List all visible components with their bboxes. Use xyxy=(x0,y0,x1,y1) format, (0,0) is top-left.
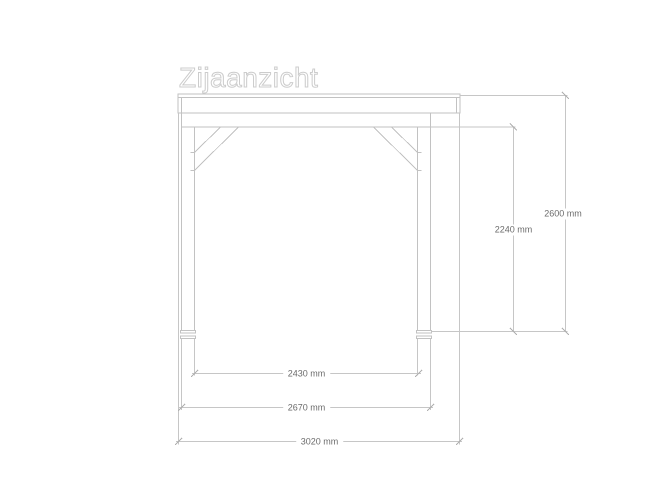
right-post xyxy=(418,127,431,331)
support-beam xyxy=(182,113,431,127)
left-post xyxy=(182,127,195,331)
right-brace xyxy=(374,127,422,171)
canopy-structure xyxy=(178,94,460,339)
dimension-label-roof-length: 3020 mm xyxy=(296,436,344,447)
right-post-anchor-bottom-plate xyxy=(417,336,432,339)
roof-panel xyxy=(178,94,460,98)
side-view-drawing: Zijaanzicht xyxy=(0,0,662,497)
dimension-label-underside-beam-height: 2240 mm xyxy=(490,225,538,236)
extension-lines xyxy=(179,96,568,445)
fascia-beam xyxy=(178,98,460,114)
dimension-ticks xyxy=(175,92,569,445)
dimension-label-total-height: 2600 mm xyxy=(539,209,587,220)
drawing-title: Zijaanzicht xyxy=(179,62,318,93)
drawing-canvas: Zijaanzicht xyxy=(0,0,662,497)
dimension-lines xyxy=(176,96,566,442)
right-post-anchor-top-plate xyxy=(417,331,432,334)
left-brace xyxy=(191,127,239,171)
left-post-anchor-bottom-plate xyxy=(181,336,196,339)
dimension-label-inner-post-span: 2430 mm xyxy=(283,368,331,379)
dimension-label-outer-post-span: 2670 mm xyxy=(283,402,331,413)
left-post-anchor-top-plate xyxy=(181,331,196,334)
